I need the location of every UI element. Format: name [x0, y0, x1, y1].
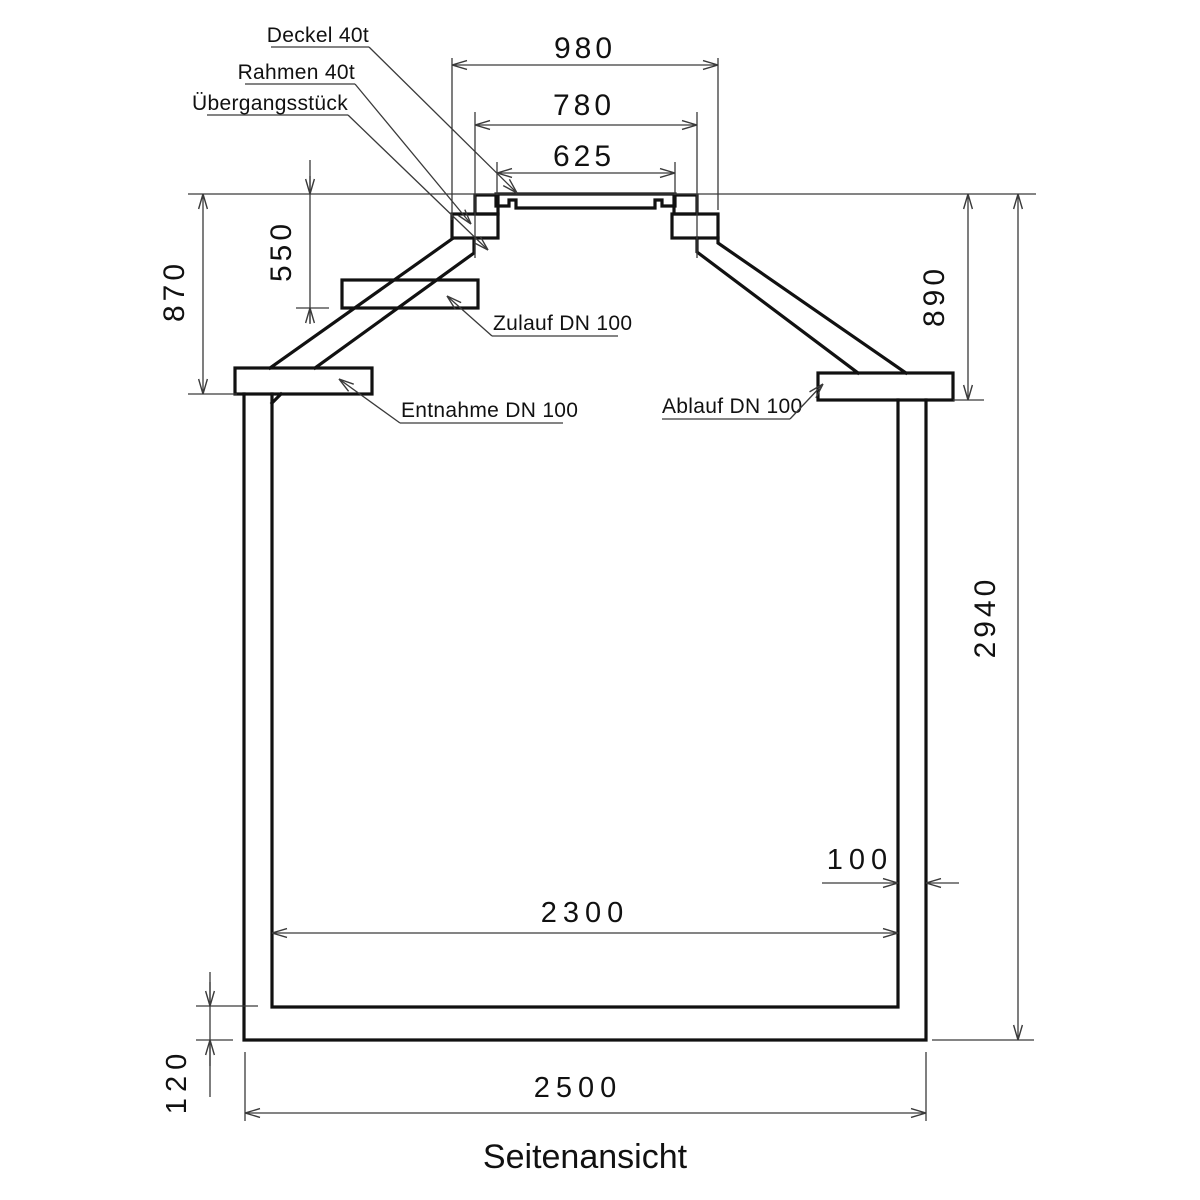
dim-625-text: 625 [553, 140, 615, 173]
entnahme-pipe [235, 368, 372, 394]
right-rahmen-neck [674, 195, 697, 214]
callout-ablauf: Ablauf DN 100 [662, 384, 823, 419]
dim-2300-text: 2300 [541, 897, 630, 929]
uebergangsstueck-label: Übergangsstück [192, 92, 348, 115]
dim-100: 100 [822, 844, 959, 883]
zulauf-leader-line [447, 296, 492, 336]
ablauf-label: Ablauf DN 100 [662, 395, 802, 418]
dim-120-text: 120 [161, 1048, 193, 1114]
dim-980: 980 [452, 32, 718, 220]
dim-890-text: 890 [918, 265, 951, 327]
dim-100-text: 100 [827, 844, 893, 876]
deckel-label: Deckel 40t [267, 24, 369, 47]
dim-870: 870 [158, 194, 237, 394]
deckel-lid-path [496, 194, 675, 208]
zulauf-label: Zulauf DN 100 [493, 312, 632, 335]
dim-550: 550 [265, 160, 329, 324]
rahmen-leader-line [355, 84, 471, 224]
callout-zulauf: Zulauf DN 100 [447, 296, 632, 336]
dim-2940-text: 2940 [969, 576, 1002, 659]
dim-890: 890 [918, 194, 984, 400]
dim-2500: 2500 [245, 1052, 926, 1121]
technical-drawing-canvas: 980 780 625 870 550 [0, 0, 1200, 1200]
entnahme-leader-line [339, 379, 400, 423]
callout-uebergangsstueck: Übergangsstück [192, 92, 488, 250]
dim-550-text: 550 [265, 220, 298, 282]
uebergangsstueck-leader-line [348, 115, 488, 250]
ablauf-pipe [818, 373, 953, 400]
dim-2500-text: 2500 [534, 1072, 623, 1104]
dim-2300: 2300 [272, 897, 898, 933]
right-cone-inner-line [697, 238, 858, 373]
tank-outer-wall-path [244, 394, 926, 1040]
drawing-title: Seitenansicht [483, 1138, 688, 1176]
right-cone-outer-line [718, 238, 906, 373]
dim-625: 625 [497, 140, 675, 195]
left-cone-inner-line [315, 238, 474, 368]
deckel-leader-line [369, 47, 517, 193]
dim-870-text: 870 [158, 260, 191, 322]
right-rahmen-block [672, 214, 718, 238]
callout-entnahme: Entnahme DN 100 [339, 379, 578, 423]
rahmen-label: Rahmen 40t [238, 61, 355, 84]
dim-980-text: 980 [554, 32, 616, 65]
dim-780-text: 780 [553, 89, 615, 122]
entnahme-label: Entnahme DN 100 [401, 399, 578, 422]
